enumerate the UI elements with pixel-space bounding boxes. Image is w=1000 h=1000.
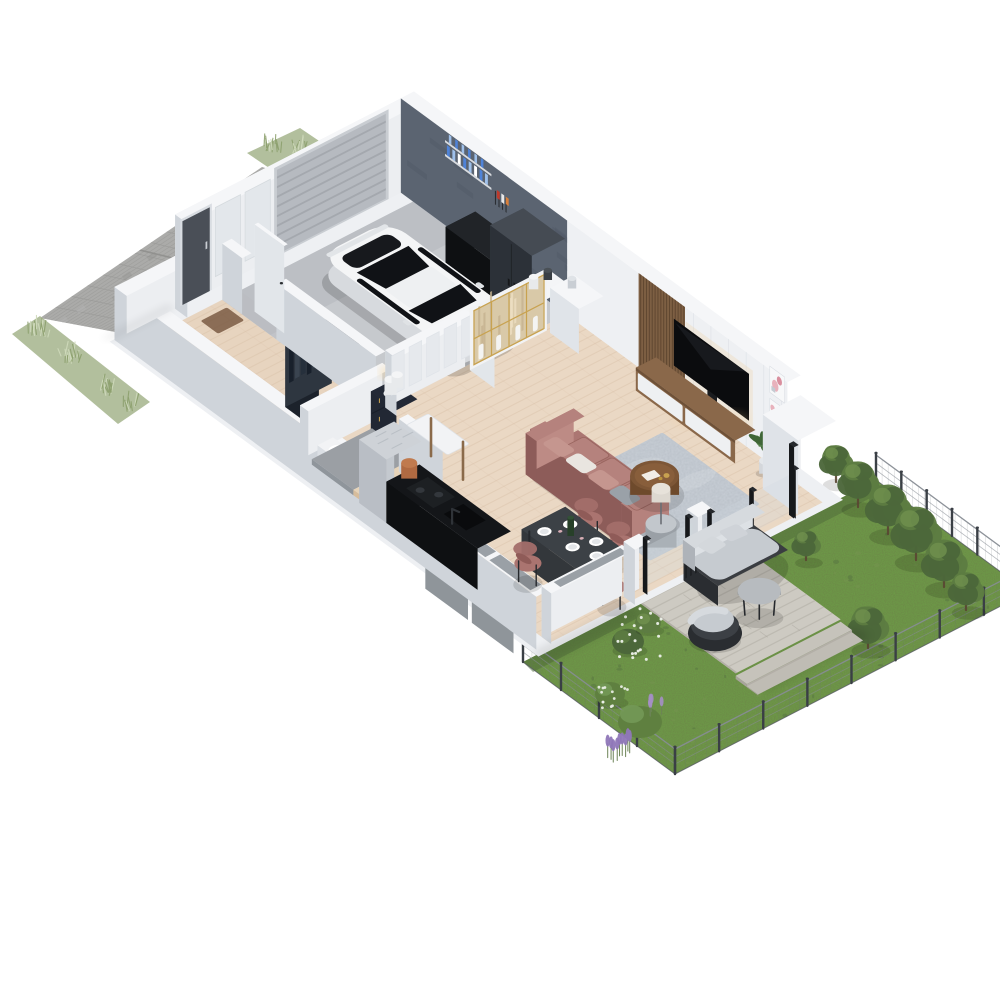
floorplan-render: 3D isometric cutaway floor plan — ground… [0, 0, 1000, 1000]
isometric-floorplan-svg: 3D isometric cutaway floor plan — ground… [0, 0, 1000, 1000]
